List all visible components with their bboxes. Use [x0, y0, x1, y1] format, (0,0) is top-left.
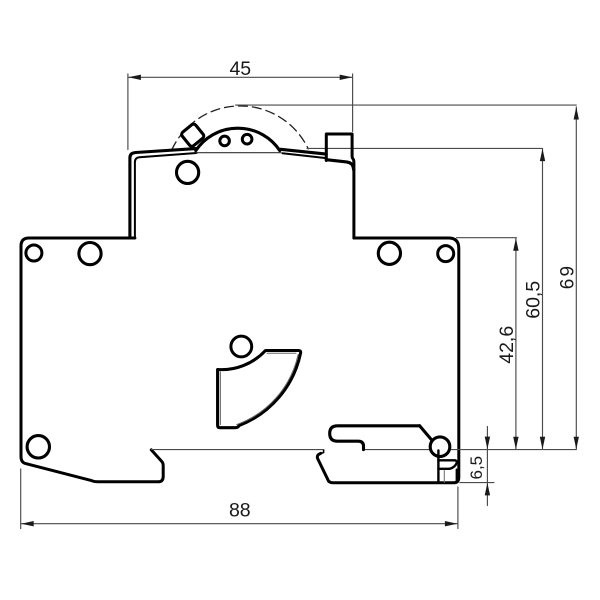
svg-text:6,5: 6,5 — [467, 456, 486, 480]
svg-text:45: 45 — [229, 58, 251, 80]
svg-text:88: 88 — [229, 499, 251, 521]
svg-text:60,5: 60,5 — [523, 281, 545, 319]
svg-text:42,6: 42,6 — [496, 326, 518, 364]
svg-text:69: 69 — [557, 264, 578, 290]
